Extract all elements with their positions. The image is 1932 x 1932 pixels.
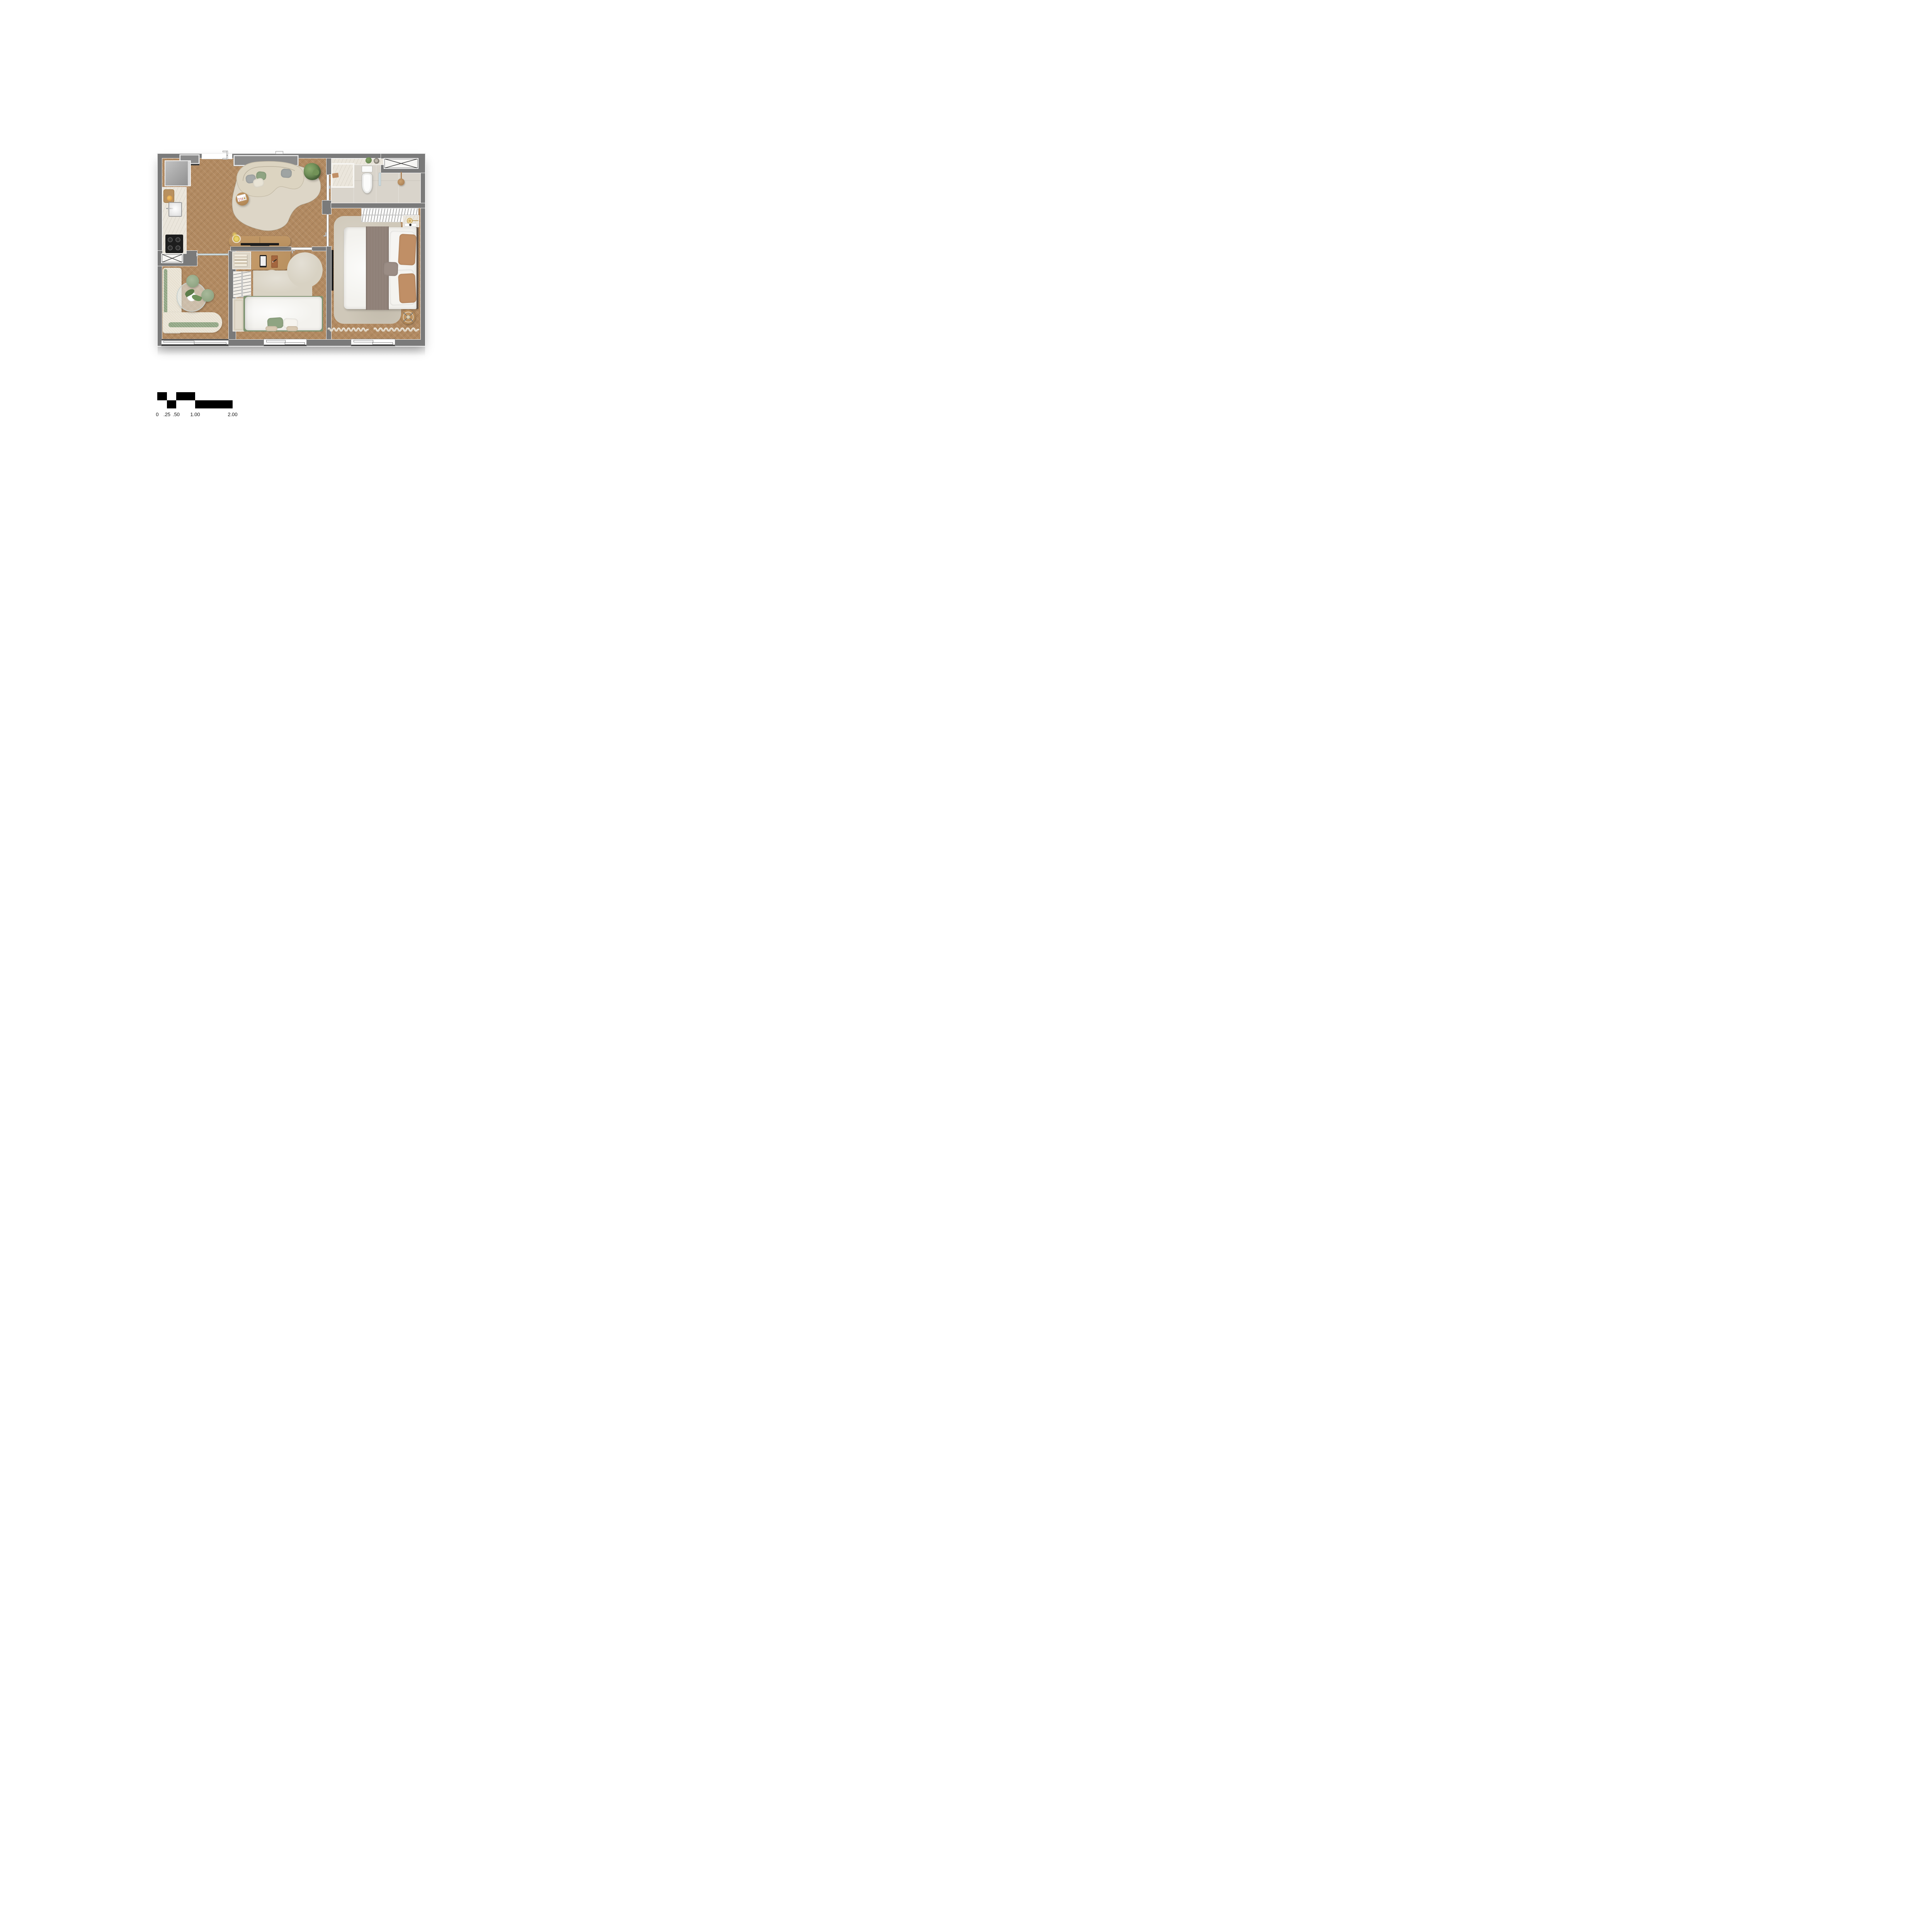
scale-segment <box>167 400 176 408</box>
plan-shadow <box>158 347 425 356</box>
bed-accent-pillow <box>398 234 417 265</box>
scale-bar: 0 .25 .50 1.00 2.00 <box>147 388 247 421</box>
scale-label: 2.00 <box>228 412 237 417</box>
burner-icon <box>168 245 173 250</box>
bed-accent-pillow <box>398 273 417 303</box>
master-bedroom-door <box>327 214 329 247</box>
shaft-box <box>161 253 183 263</box>
window-sill <box>264 345 306 346</box>
flowers-icon <box>231 232 238 237</box>
tray-dish-icon <box>409 224 412 226</box>
entry-door-pivot-icon <box>226 151 228 155</box>
scale-segment <box>195 400 233 408</box>
curtain-icon <box>374 327 419 332</box>
citrus-bowl <box>167 196 172 201</box>
bedroom2-door <box>291 247 312 250</box>
toilet-tank <box>362 166 372 172</box>
wall-bathroom-bottom <box>331 203 425 208</box>
entry-door-pivot-icon <box>226 155 228 160</box>
wall-master-left <box>327 247 331 339</box>
wall-bathroom-left <box>327 158 331 174</box>
bedroom2-cabinet <box>233 298 245 332</box>
banquette-back-cushion <box>168 322 219 327</box>
lamp-arm-icon <box>412 220 418 221</box>
scale-segment <box>176 392 195 400</box>
scale-label: 1.00 <box>190 412 200 417</box>
wall-bedroom2-top <box>231 247 291 251</box>
vanity-accessory <box>332 173 339 178</box>
scale-label: .25 <box>163 412 170 417</box>
round-side-table <box>401 310 415 324</box>
burner-icon <box>168 237 173 242</box>
shower-glass-partition <box>379 173 381 186</box>
faucet-icon <box>166 208 173 209</box>
shaft-x-icon <box>162 254 182 262</box>
bedroom2-wardrobe <box>233 271 251 298</box>
nook-sliding-glass-door <box>197 253 229 255</box>
bathroom-door-handle-icon <box>329 185 330 189</box>
bed-pillow <box>286 326 298 331</box>
bedroom2-round-rug <box>287 252 323 288</box>
scale-label: .50 <box>173 412 180 417</box>
bedroom2-door-handle-icon <box>292 250 293 253</box>
wall-bedroom2-top <box>312 247 327 251</box>
vessel-sink <box>374 158 379 164</box>
curtain-icon <box>328 327 369 332</box>
wall-pier <box>322 201 331 214</box>
nook-balcony-door <box>162 339 228 346</box>
page: { "scale_bar": { "labels": ["0", ".25", … <box>0 0 580 490</box>
window-panel <box>266 340 286 342</box>
coffee-cup <box>243 196 247 200</box>
refrigerator <box>165 160 191 186</box>
pouf-stool <box>186 275 199 287</box>
floor-plan: THE BOO <box>158 154 425 346</box>
window-sill <box>351 345 395 346</box>
burner-icon <box>175 237 180 242</box>
wall-tv <box>332 250 333 291</box>
table-cross-icon <box>401 310 415 324</box>
shaft-x-icon <box>384 159 418 168</box>
bed-pillow <box>265 326 277 331</box>
burner-icon <box>175 245 180 250</box>
sofa-pillow <box>281 168 292 178</box>
shower-head-icon <box>398 179 405 185</box>
window-panel <box>354 340 373 342</box>
pouf-stool <box>201 289 214 302</box>
master-window <box>351 339 395 346</box>
scale-segment <box>157 392 167 400</box>
cooktop <box>165 235 183 253</box>
books-icon <box>235 255 247 266</box>
kitchen-sink <box>168 202 182 217</box>
bathroom-door <box>327 174 329 201</box>
tv-stand <box>250 245 269 246</box>
e-reader <box>260 255 267 267</box>
toilet-bowl <box>362 173 372 194</box>
door-panel <box>163 341 194 343</box>
bed-small-pillow <box>383 262 398 276</box>
door-sill <box>162 344 228 346</box>
bedroom2-window <box>264 339 306 346</box>
scale-label: 0 <box>156 412 158 417</box>
shaft-box <box>384 158 418 169</box>
wall-notch <box>276 151 283 154</box>
e-reader-screen <box>260 256 266 266</box>
master-door-handle-icon <box>325 232 327 236</box>
glass-door-jamb <box>196 252 198 257</box>
